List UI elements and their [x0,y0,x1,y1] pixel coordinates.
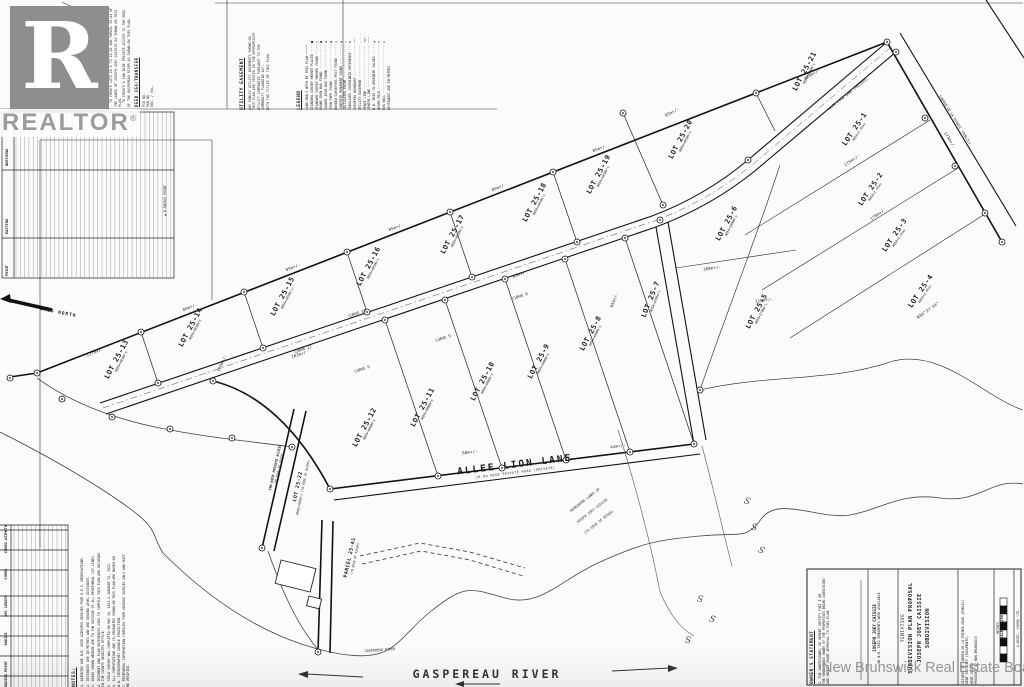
lot-label-lot-25-10: LOT 25-10AREA=4000m²± [469,360,499,403]
lot-label-lot-25-12: LOT 25-12AREA=4000m²± [351,406,381,449]
plan-annotation: GASPEREAU RIVER [365,647,396,653]
plan-annotation: S [750,522,758,533]
river-label: GASPEREAU RIVER [413,667,562,681]
lot-label-lot-25-11: LOT 25-11AREA=4000m²± [409,386,439,429]
lot-label-lot-25-1: LOT 25-1AREA=1.4ha± [841,111,872,149]
private-access-label: 10m WIDE PRIVATE ACCESS (TO EDGE OF RIVE… [268,444,286,492]
nb-real-estate-board-watermark: New Brunswick Real Estate Board [822,660,1024,676]
plan-annotation: 60m+/- [462,449,478,456]
plan-annotation: 85m+/- [512,269,528,279]
plan-annotation: 85m+/- [592,143,608,153]
plan-annotation: 173m+/- [943,131,957,149]
lot-25-22-label: LOT 25-22 AREA=4300m²± (TO EDGE OF RIVER… [289,459,310,516]
realtor-wordmark: REALTOR® [0,109,140,137]
annotation-layer: ALLEE LION LANE 10.0m WIDE PRIVATE ROAD … [0,0,1024,687]
plan-annotation: 178m+/- [869,207,887,222]
plan-annotation: 100m+/- [216,354,228,373]
plan-annotation: 127m+/- [86,346,105,357]
plan-annotation: CURVE 14 [348,308,367,319]
plan-annotation: S [742,496,751,508]
lot-label-lot-25-18: LOT 25-18AREA=4050m²± [521,181,551,224]
plan-sheet: PURPOSE OF PLAN - TO CREATE LOTS 25-1 TO… [0,0,1024,687]
lot-label-lot-25-19: LOT 25-19AREA=4050m²± [585,153,615,196]
realtor-logo: R [10,6,109,112]
lot-label-lot-25-6: LOT 25-6AREA=5000m²± [714,204,742,243]
realtor-logo-letter: R [21,10,97,102]
lot-label-lot-25-3: LOT 25-3AREA=1.4ha± [881,217,912,255]
grid-north-label: GRID NORTH [39,307,76,319]
plan-annotation: CURVE 6 [354,364,371,374]
lot-label-lot-25-16: LOT 25-16AREA=4050m²± [355,245,385,288]
road-label-allee-lion-lane: ALLEE LION LANE 10.0m WIDE PRIVATE ROAD … [457,452,574,481]
realtor-word-text: REALTOR [2,109,130,136]
scanned-subdivision-plan: { "branding": { "logo_letter": "R", "log… [0,0,1024,687]
lot-label-lot-25-9: LOT 25-9AREA=4000m²± [526,342,554,381]
plan-annotation: S [684,636,692,647]
lot-label-lot-25-13: LOT 25-13AREA=4050m²± [103,338,133,381]
lot-label-lot-25-14: LOT 25-14AREA=4050m²± [177,306,207,349]
plan-annotation: 85m+/- [285,262,301,272]
lot-name: LOT 25-2 [857,171,885,207]
plan-annotation: CURVE 8 [512,291,529,301]
plan-annotation: S [708,614,717,625]
parcel-25-a1-label: PARCEL 25-A1 (TO EDGE OF RIVER) [343,537,361,579]
plan-annotation: CHEMIN DE LA POINTE (PUBLIC) [938,95,972,146]
plan-annotation: ALLEE LION LANE (PRIVATE) [827,77,870,112]
plan-annotation: 44m+/- [610,443,626,450]
lot-label-lot-25-2: LOT 25-2AREA=1.4ha± [857,171,888,209]
lot-label-lot-25-17: LOT 25-17AREA=4050m²± [439,213,469,256]
lot-name: LOT 25-3 [881,217,909,253]
lot-label-lot-25-8: LOT 25-8AREA=4000m²± [578,314,606,353]
plan-annotation: 85m+/- [388,222,404,232]
plan-annotation: 85m+/- [664,106,680,118]
plan-annotation: S [696,595,704,606]
lot-name: LOT 25-1 [841,111,869,147]
plan-annotation: 175m+/- [843,153,861,168]
plan-annotation: CURVE 9 [435,333,452,343]
plan-annotation: 85m+/- [491,182,507,192]
plan-annotation: 108m+/- [703,264,722,271]
registered-symbol: ® [130,113,139,123]
plan-annotation: S [756,545,766,557]
lot-label-lot-25-15: LOT 25-15AREA=4050m²± [269,275,299,318]
lot-label-lot-25-20: LOT 25-20AREA=4050m²± [667,118,697,161]
plan-annotation: 95m+/- [609,292,619,308]
lot-label-lot-25-7: LOT 25-7AREA=4000m²± [640,280,665,320]
